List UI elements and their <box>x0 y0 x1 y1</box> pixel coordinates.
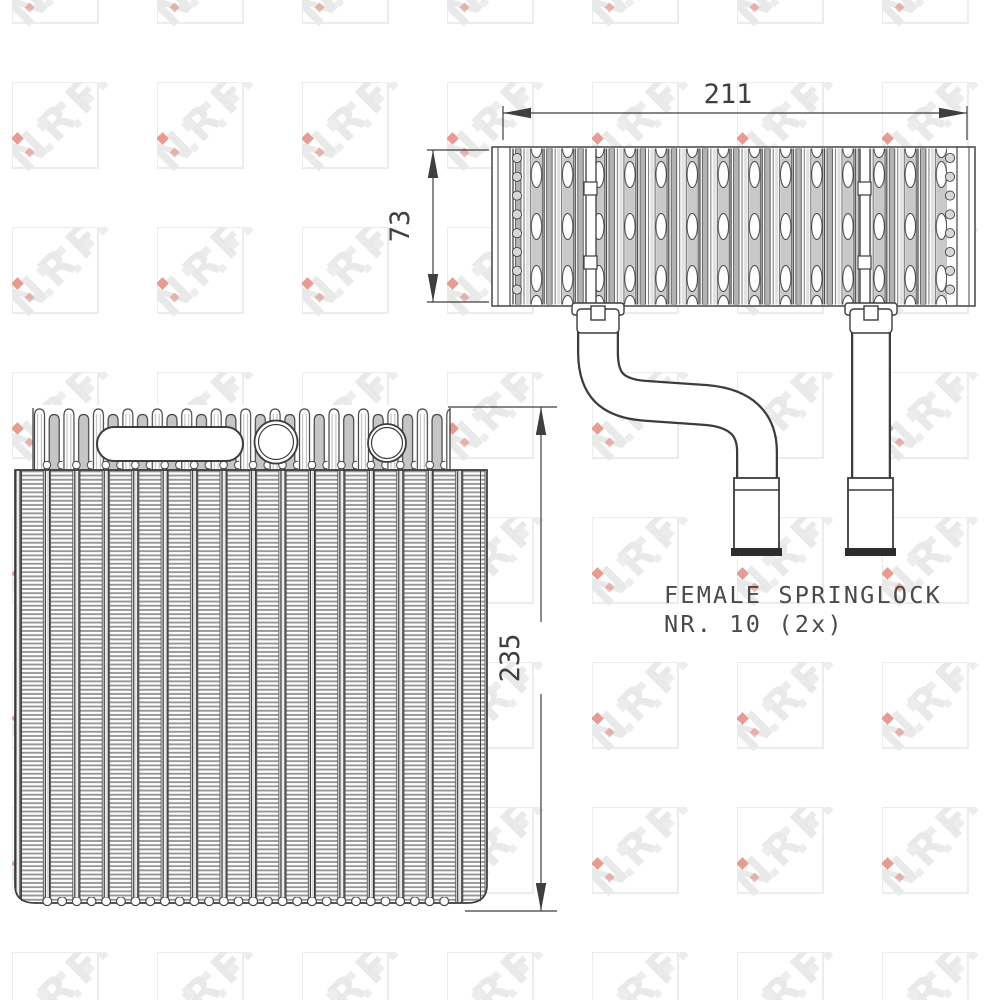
pipe-port-right <box>368 424 406 462</box>
annotation-line1: FEMALE SPRINGLOCK <box>664 581 942 609</box>
dim-label-front-height: 235 <box>495 634 526 683</box>
technical-drawing-svg: NRF <box>0 0 1000 1000</box>
springlock-right <box>848 478 893 552</box>
springlock-left <box>734 478 779 552</box>
dim-label-top-width: 211 <box>704 79 753 110</box>
front-view <box>15 405 487 908</box>
pipe-port-left <box>255 421 298 464</box>
front-core-body <box>15 470 487 903</box>
annotation-line2: NR. 10 (2x) <box>664 610 844 638</box>
drawing-canvas: NRF <box>0 0 1000 1000</box>
dim-label-top-depth: 73 <box>385 210 416 243</box>
mounting-slot <box>97 427 243 461</box>
bottom-scallops <box>40 897 452 908</box>
top-view <box>492 147 975 333</box>
